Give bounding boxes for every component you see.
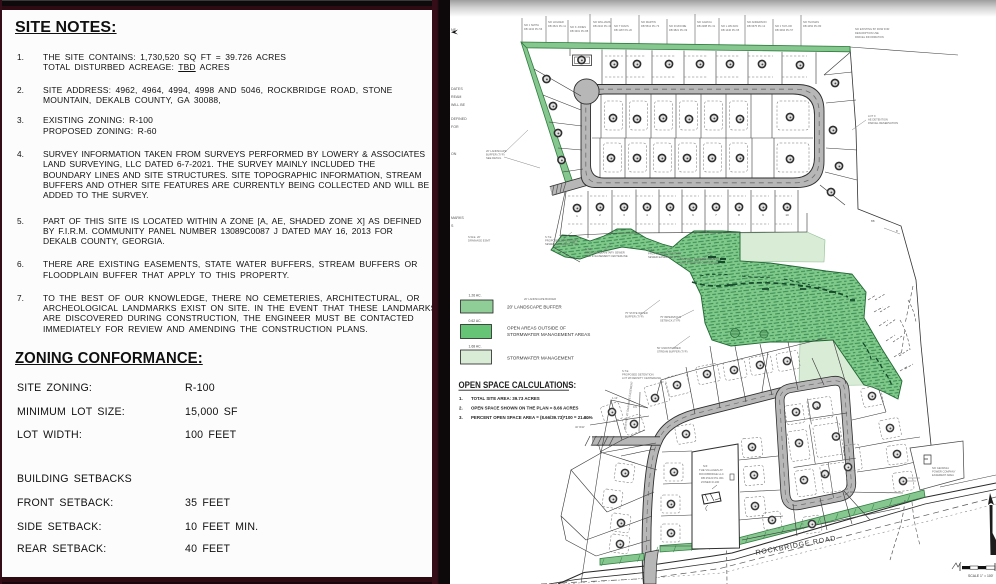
svg-text:DB 1234 PG 56: DB 1234 PG 56 [524, 27, 543, 31]
svg-text:MARKS: MARKS [451, 216, 464, 220]
svg-text:N/F J TAYLOR: N/F J TAYLOR [775, 24, 792, 28]
svg-text:ZONED R-100: ZONED R-100 [701, 480, 720, 484]
svg-text:40' R/W: 40' R/W [575, 425, 585, 429]
svg-text:N/F K JONES: N/F K JONES [570, 25, 586, 29]
svg-text:SEWER EASEMENT (TYP): SEWER EASEMENT (TYP) [648, 255, 681, 259]
svg-text:LINE IN EASEMENT CENTERLINE: LINE IN EASEMENT CENTERLINE [585, 254, 628, 258]
svg-text:20' LANDSCAPE BUFFER: 20' LANDSCAPE BUFFER [524, 297, 556, 301]
svg-text:N/F GARCIA: N/F GARCIA [697, 20, 712, 24]
svg-text:SANITARY SEWER EASEMENT: SANITARY SEWER EASEMENT [680, 257, 720, 261]
svg-text:OPEN SPACE CALCULATIONS:: OPEN SPACE CALCULATIONS: [459, 379, 577, 390]
svg-text:2.: 2. [459, 406, 463, 411]
svg-text:REAM: REAM [451, 95, 461, 99]
svg-text:PROPOSED SANITARY SEWER: PROPOSED SANITARY SEWER [585, 251, 625, 255]
svg-text:S: S [451, 224, 454, 228]
svg-text:DB 3301 PG 88: DB 3301 PG 88 [570, 29, 589, 33]
svg-text:7: 7 [715, 213, 717, 217]
svg-text:0.9: 0.9 [633, 405, 637, 409]
svg-text:20' LANDSCAPE BUFFER: 20' LANDSCAPE BUFFER [507, 305, 562, 310]
svg-text:OPEN SPACE SHOWN ON THE PLAN =: OPEN SPACE SHOWN ON THE PLAN = 8.66 ACRE… [471, 406, 579, 411]
svg-text:N/F L WILSON: N/F L WILSON [721, 24, 738, 28]
svg-text:N/F R MOORE: N/F R MOORE [669, 24, 687, 28]
svg-text:3.: 3. [459, 415, 463, 420]
svg-text:DB 1440 PG 65: DB 1440 PG 65 [721, 28, 740, 32]
svg-text:S.T.E: S.T.E [585, 247, 592, 251]
svg-text:SCALE 1" = 100': SCALE 1" = 100' [968, 574, 994, 578]
svg-text:STREAM BUFFER (TYP): STREAM BUFFER (TYP) [657, 350, 688, 354]
svg-text:DB 4521 PG 11: DB 4521 PG 11 [548, 24, 567, 28]
svg-text:6: 6 [692, 213, 694, 217]
svg-text:1.13': 1.13' [612, 396, 618, 400]
svg-text:BUFFER (TYP): BUFFER (TYP) [486, 153, 505, 157]
svg-text:75' IMPERVIOUS: 75' IMPERVIOUS [660, 315, 681, 319]
svg-text:AE DETENTION: AE DETENTION [868, 118, 888, 122]
svg-text:SETBACK (TYP): SETBACK (TYP) [660, 319, 680, 323]
svg-text:SEE DETAIL: SEE DETAIL [486, 156, 502, 160]
svg-text:FOR: FOR [451, 125, 459, 129]
svg-text:POWER COMPANY: POWER COMPANY [932, 469, 956, 473]
svg-text:N/F MARTIN: N/F MARTIN [641, 20, 656, 24]
svg-text:OPEN AREAS OUTSIDE OF: OPEN AREAS OUTSIDE OF [507, 326, 566, 331]
svg-text:N/F THOMAS: N/F THOMAS [803, 20, 819, 24]
svg-text:0.62 AC.: 0.62 AC. [469, 319, 482, 323]
svg-text:N/F T DAVIS: N/F T DAVIS [614, 24, 629, 28]
svg-text:1.26 AC.: 1.26 AC. [469, 294, 482, 298]
svg-text:20' LANDSCAPE: 20' LANDSCAPE [486, 149, 507, 153]
svg-text:STORMWATER MANAGEMENT: STORMWATER MANAGEMENT [507, 356, 574, 361]
svg-text:N/F HOLDER: N/F HOLDER [548, 20, 564, 24]
svg-text:DB 6675 PG 12: DB 6675 PG 12 [747, 24, 766, 28]
svg-text:10: 10 [785, 213, 789, 217]
svg-text:N/F GEORGIA: N/F GEORGIA [932, 466, 949, 470]
svg-text:EASEMENT AREA: EASEMENT AREA [932, 473, 954, 477]
svg-text:LOT 28 DENSITY CENTERLINE: LOT 28 DENSITY CENTERLINE [622, 376, 661, 380]
svg-text:N/F J SMITH: N/F J SMITH [524, 23, 539, 27]
svg-text:LINE IN BUFFER CENTERLINE: LINE IN BUFFER CENTERLINE [680, 261, 719, 265]
svg-text:9: 9 [762, 213, 764, 217]
svg-text:5: 5 [669, 213, 671, 217]
svg-text:S.T.E: S.T.E [622, 369, 629, 373]
svg-text:PARCEL RESERVATION: PARCEL RESERVATION [868, 121, 898, 125]
svg-text:LOT X: LOT X [868, 114, 876, 118]
svg-text:DB 4452 PG 80: DB 4452 PG 80 [803, 24, 822, 28]
svg-text:N/F ANDERSON: N/F ANDERSON [747, 20, 767, 24]
svg-text:1.: 1. [459, 396, 463, 401]
svg-text:DB 3094 PG 57: DB 3094 PG 57 [775, 28, 794, 32]
svg-text:DB 3821 PG 09: DB 3821 PG 09 [669, 28, 688, 32]
svg-text:3: 3 [623, 213, 625, 217]
svg-text:2: 2 [599, 213, 601, 217]
svg-text:50' UNDISTURBED: 50' UNDISTURBED [657, 346, 681, 350]
svg-text:DB 2288 PG 31: DB 2288 PG 31 [697, 24, 716, 28]
svg-text:N/F WILLIAMS: N/F WILLIAMS [593, 20, 611, 24]
svg-text:PROPOSED 20' SANITARY: PROPOSED 20' SANITARY [648, 252, 682, 256]
svg-text:SEWER EASEMENT (TYP): SEWER EASEMENT (TYP) [545, 242, 578, 246]
svg-text:PROPOSED DETENTION: PROPOSED DETENTION [622, 373, 654, 377]
svg-text:1.68 AC.: 1.68 AC. [469, 345, 482, 349]
svg-text:S.T.E: S.T.E [545, 235, 552, 239]
svg-text:8: 8 [738, 213, 740, 217]
svg-text:NE: NE [451, 28, 457, 32]
svg-text:BB: BB [871, 219, 875, 223]
svg-text:DB 1187 PG 20: DB 1187 PG 20 [614, 28, 633, 32]
svg-text:4: 4 [646, 213, 648, 217]
svg-text:DATES: DATES [451, 87, 463, 91]
svg-text:STORMWATER MANAGEMENT AREAS: STORMWATER MANAGEMENT AREAS [507, 332, 590, 337]
svg-text:WILL BE: WILL BE [451, 103, 466, 107]
svg-text:1: 1 [576, 214, 578, 218]
svg-text:S.T.E: S.T.E [648, 248, 655, 252]
svg-text:ON: ON [451, 152, 457, 156]
svg-text:DB 5512 PG 73: DB 5512 PG 73 [641, 24, 660, 28]
svg-text:DESCRIPTION USE: DESCRIPTION USE [855, 31, 879, 35]
svg-text:PARCEL INFORMATION: PARCEL INFORMATION [855, 35, 884, 39]
svg-text:N/F EXISTING 50' ROW FOR: N/F EXISTING 50' ROW FOR [855, 27, 889, 31]
svg-text:PERCENT OPEN SPACE AREA = (8.6: PERCENT OPEN SPACE AREA = (8.66/39.73)*1… [471, 415, 593, 420]
svg-text:S.W.E. 20': S.W.E. 20' [468, 235, 481, 239]
svg-text:TOTAL SITE AREA: 39.73 ACRES: TOTAL SITE AREA: 39.73 ACRES [471, 396, 540, 401]
svg-text:DRAINAGE ESMT: DRAINAGE ESMT [468, 239, 491, 243]
svg-text:BUFFER (TYP): BUFFER (TYP) [625, 315, 644, 319]
svg-text:DB 2210 PG 43: DB 2210 PG 43 [593, 24, 612, 28]
svg-text:ROCKBRIDGE ROAD: ROCKBRIDGE ROAD [755, 535, 837, 557]
svg-text:DEFINED: DEFINED [451, 117, 467, 121]
